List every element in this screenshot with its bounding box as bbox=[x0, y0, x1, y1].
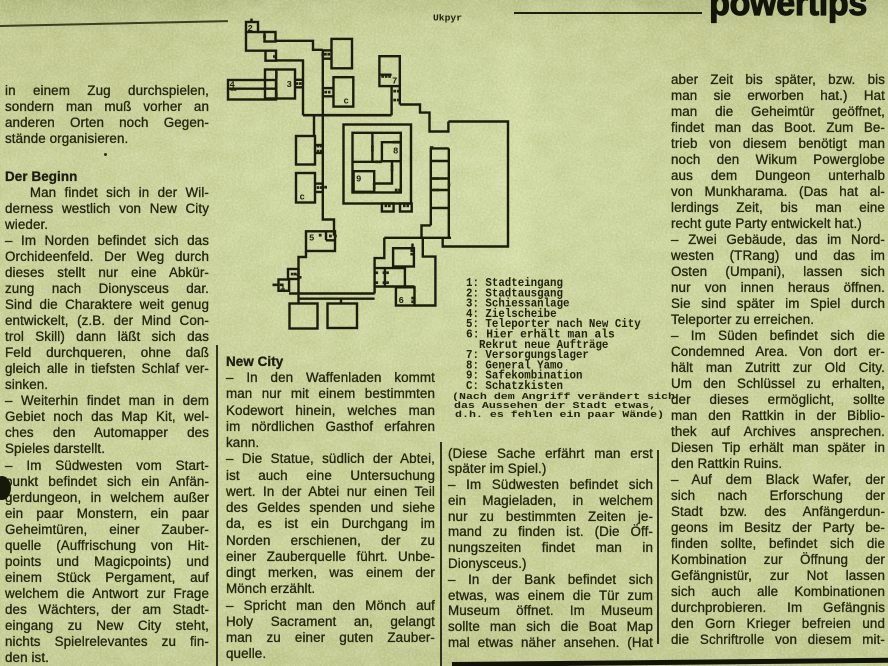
svg-text:8: 8 bbox=[393, 147, 398, 157]
svg-text:Ukpyr: Ukpyr bbox=[433, 13, 462, 24]
svg-text:C: Schatzkisten: C: Schatzkisten bbox=[466, 379, 563, 393]
svg-text:9: 9 bbox=[356, 175, 361, 185]
svg-text:5: 5 bbox=[309, 234, 314, 244]
svg-text:1: 1 bbox=[280, 283, 286, 293]
svg-text:d.h. es fehlen ein paar Wände): d.h. es fehlen ein paar Wände) bbox=[455, 410, 664, 420]
svg-text:4: 4 bbox=[230, 81, 236, 91]
svg-text:3: 3 bbox=[287, 80, 292, 90]
svg-text:c: c bbox=[300, 193, 305, 203]
svg-text:2: 2 bbox=[248, 24, 253, 34]
svg-text:6: 6 bbox=[399, 296, 404, 306]
svg-text:7: 7 bbox=[392, 77, 397, 87]
svg-text:c: c bbox=[344, 97, 349, 107]
